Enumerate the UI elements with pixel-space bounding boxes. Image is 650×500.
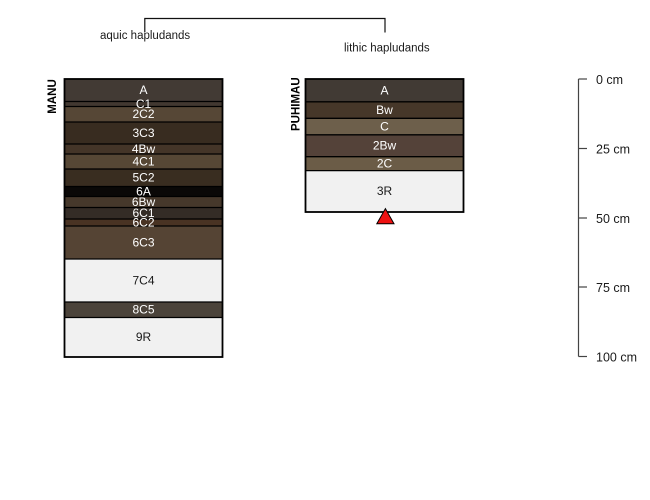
svg-text:5C2: 5C2 <box>132 171 154 185</box>
svg-text:2C: 2C <box>377 157 393 171</box>
svg-text:3C3: 3C3 <box>132 126 154 140</box>
svg-text:6C2: 6C2 <box>132 215 154 229</box>
svg-text:75 cm: 75 cm <box>596 281 630 295</box>
svg-text:MANU: MANU <box>47 79 59 114</box>
svg-text:25 cm: 25 cm <box>596 142 630 156</box>
svg-text:0 cm: 0 cm <box>596 73 623 87</box>
svg-text:2Bw: 2Bw <box>373 139 397 153</box>
svg-text:9R: 9R <box>136 330 152 344</box>
svg-text:2C2: 2C2 <box>132 107 154 121</box>
svg-text:3R: 3R <box>377 184 393 198</box>
svg-text:aquic hapludands: aquic hapludands <box>100 30 190 42</box>
svg-text:A: A <box>380 83 388 97</box>
svg-text:C: C <box>380 120 389 134</box>
svg-text:PUHIMAU: PUHIMAU <box>291 77 303 131</box>
svg-text:50 cm: 50 cm <box>596 212 630 226</box>
svg-text:lithic hapludands: lithic hapludands <box>344 43 430 55</box>
svg-text:A: A <box>139 83 147 97</box>
svg-text:8C5: 8C5 <box>132 303 154 317</box>
svg-text:Bw: Bw <box>376 103 393 117</box>
svg-text:6C3: 6C3 <box>132 235 154 249</box>
svg-text:4C1: 4C1 <box>132 154 154 168</box>
svg-text:100 cm: 100 cm <box>596 351 637 365</box>
svg-text:7C4: 7C4 <box>132 273 154 287</box>
